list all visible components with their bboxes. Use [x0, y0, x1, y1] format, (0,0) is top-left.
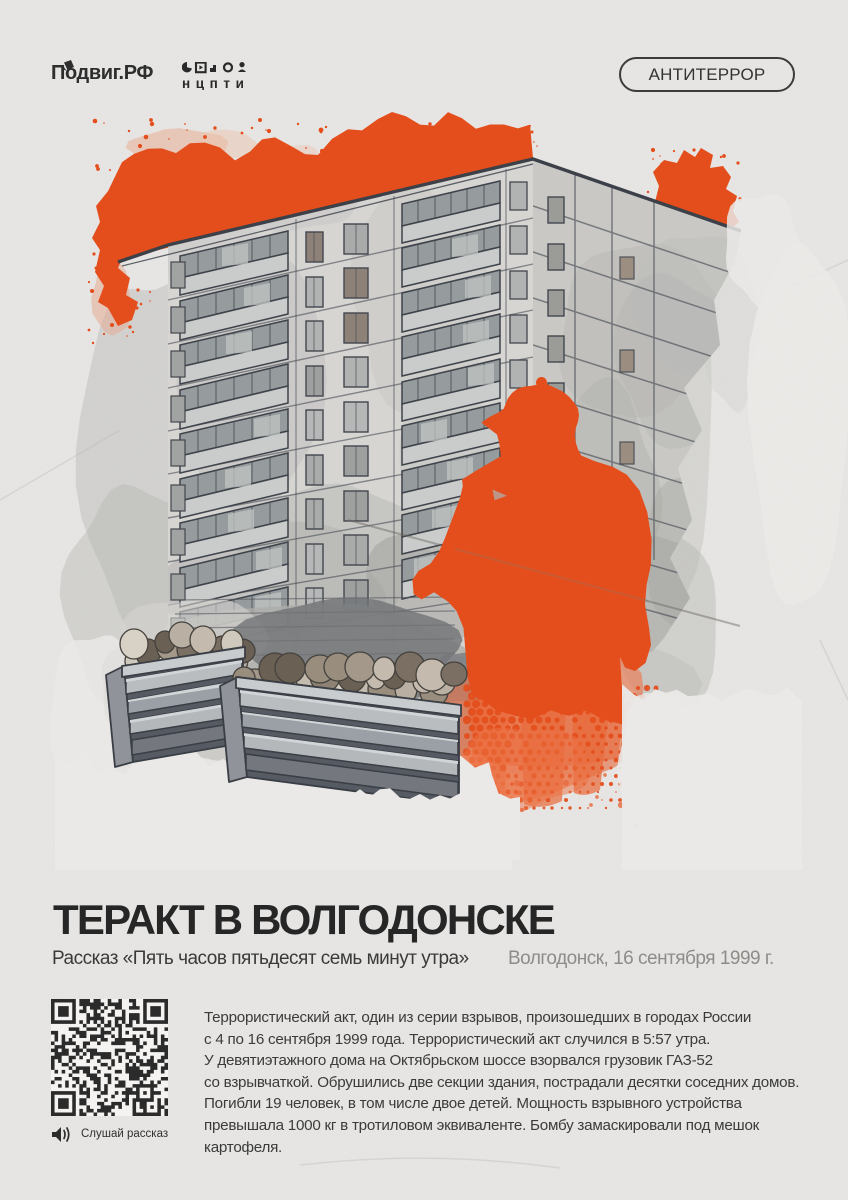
svg-text:нцпти: нцпти — [182, 76, 248, 90]
